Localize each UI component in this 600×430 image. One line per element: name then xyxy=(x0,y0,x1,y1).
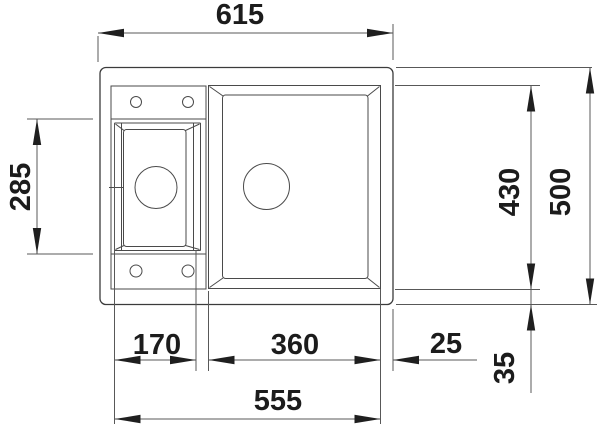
dimension-bowls-total-width: 555 xyxy=(115,385,381,423)
sink-outline xyxy=(100,68,393,305)
arrowhead-top xyxy=(33,119,41,145)
small-bowl-drain xyxy=(135,167,177,209)
arrowhead-bottom xyxy=(586,279,594,305)
dimension-right-gap: 25 xyxy=(393,309,477,371)
dimension-label: 25 xyxy=(430,328,462,360)
arrowhead-up xyxy=(527,305,535,331)
dimension-label: 360 xyxy=(271,329,319,361)
main-bowl-rim xyxy=(209,86,381,289)
arrowhead-left xyxy=(98,29,124,37)
arrowhead-left xyxy=(115,415,141,423)
arrowhead-bottom xyxy=(33,228,41,254)
screw-hole xyxy=(131,97,142,108)
arrowhead-top xyxy=(527,86,535,112)
main-bowl-floor xyxy=(223,95,369,279)
sink-technical-drawing: 615 285 430 500 35 170 xyxy=(0,0,600,430)
dimension-label: 555 xyxy=(254,385,302,417)
dimension-inner-length: 430 xyxy=(395,86,540,394)
screw-hole xyxy=(183,97,194,108)
screw-hole xyxy=(130,265,142,277)
bowl-corner-bevels xyxy=(210,87,380,288)
dimension-overall-width: 615 xyxy=(98,0,393,62)
dimension-label: 500 xyxy=(545,168,577,216)
arrowhead-top xyxy=(586,68,594,94)
dimension-label: 35 xyxy=(489,352,521,384)
arrowhead-right xyxy=(355,356,381,364)
arrowhead-left xyxy=(393,356,419,364)
dimension-small-bowl-width: 170 xyxy=(115,123,197,424)
arrowhead-right xyxy=(355,415,381,423)
dimension-label: 285 xyxy=(5,163,37,211)
bowl-corner-bevels xyxy=(116,124,200,250)
small-bowl-module xyxy=(109,86,206,289)
main-bowl-drain xyxy=(244,164,290,210)
dimension-label: 615 xyxy=(216,0,264,31)
arrowhead-bottom xyxy=(527,264,535,290)
dimension-label: 430 xyxy=(494,168,526,216)
main-bowl-module xyxy=(209,86,381,289)
dimension-small-bowl-length: 285 xyxy=(5,119,93,254)
dimension-bottom-gap: 35 xyxy=(489,305,535,385)
screw-hole xyxy=(182,265,194,277)
small-bowl-frame xyxy=(111,86,206,289)
dimension-label: 170 xyxy=(133,329,181,361)
sink-outer-edge xyxy=(100,68,393,305)
arrowhead-right xyxy=(367,29,393,37)
extension-lines xyxy=(115,123,197,424)
arrowhead-left xyxy=(209,356,235,364)
